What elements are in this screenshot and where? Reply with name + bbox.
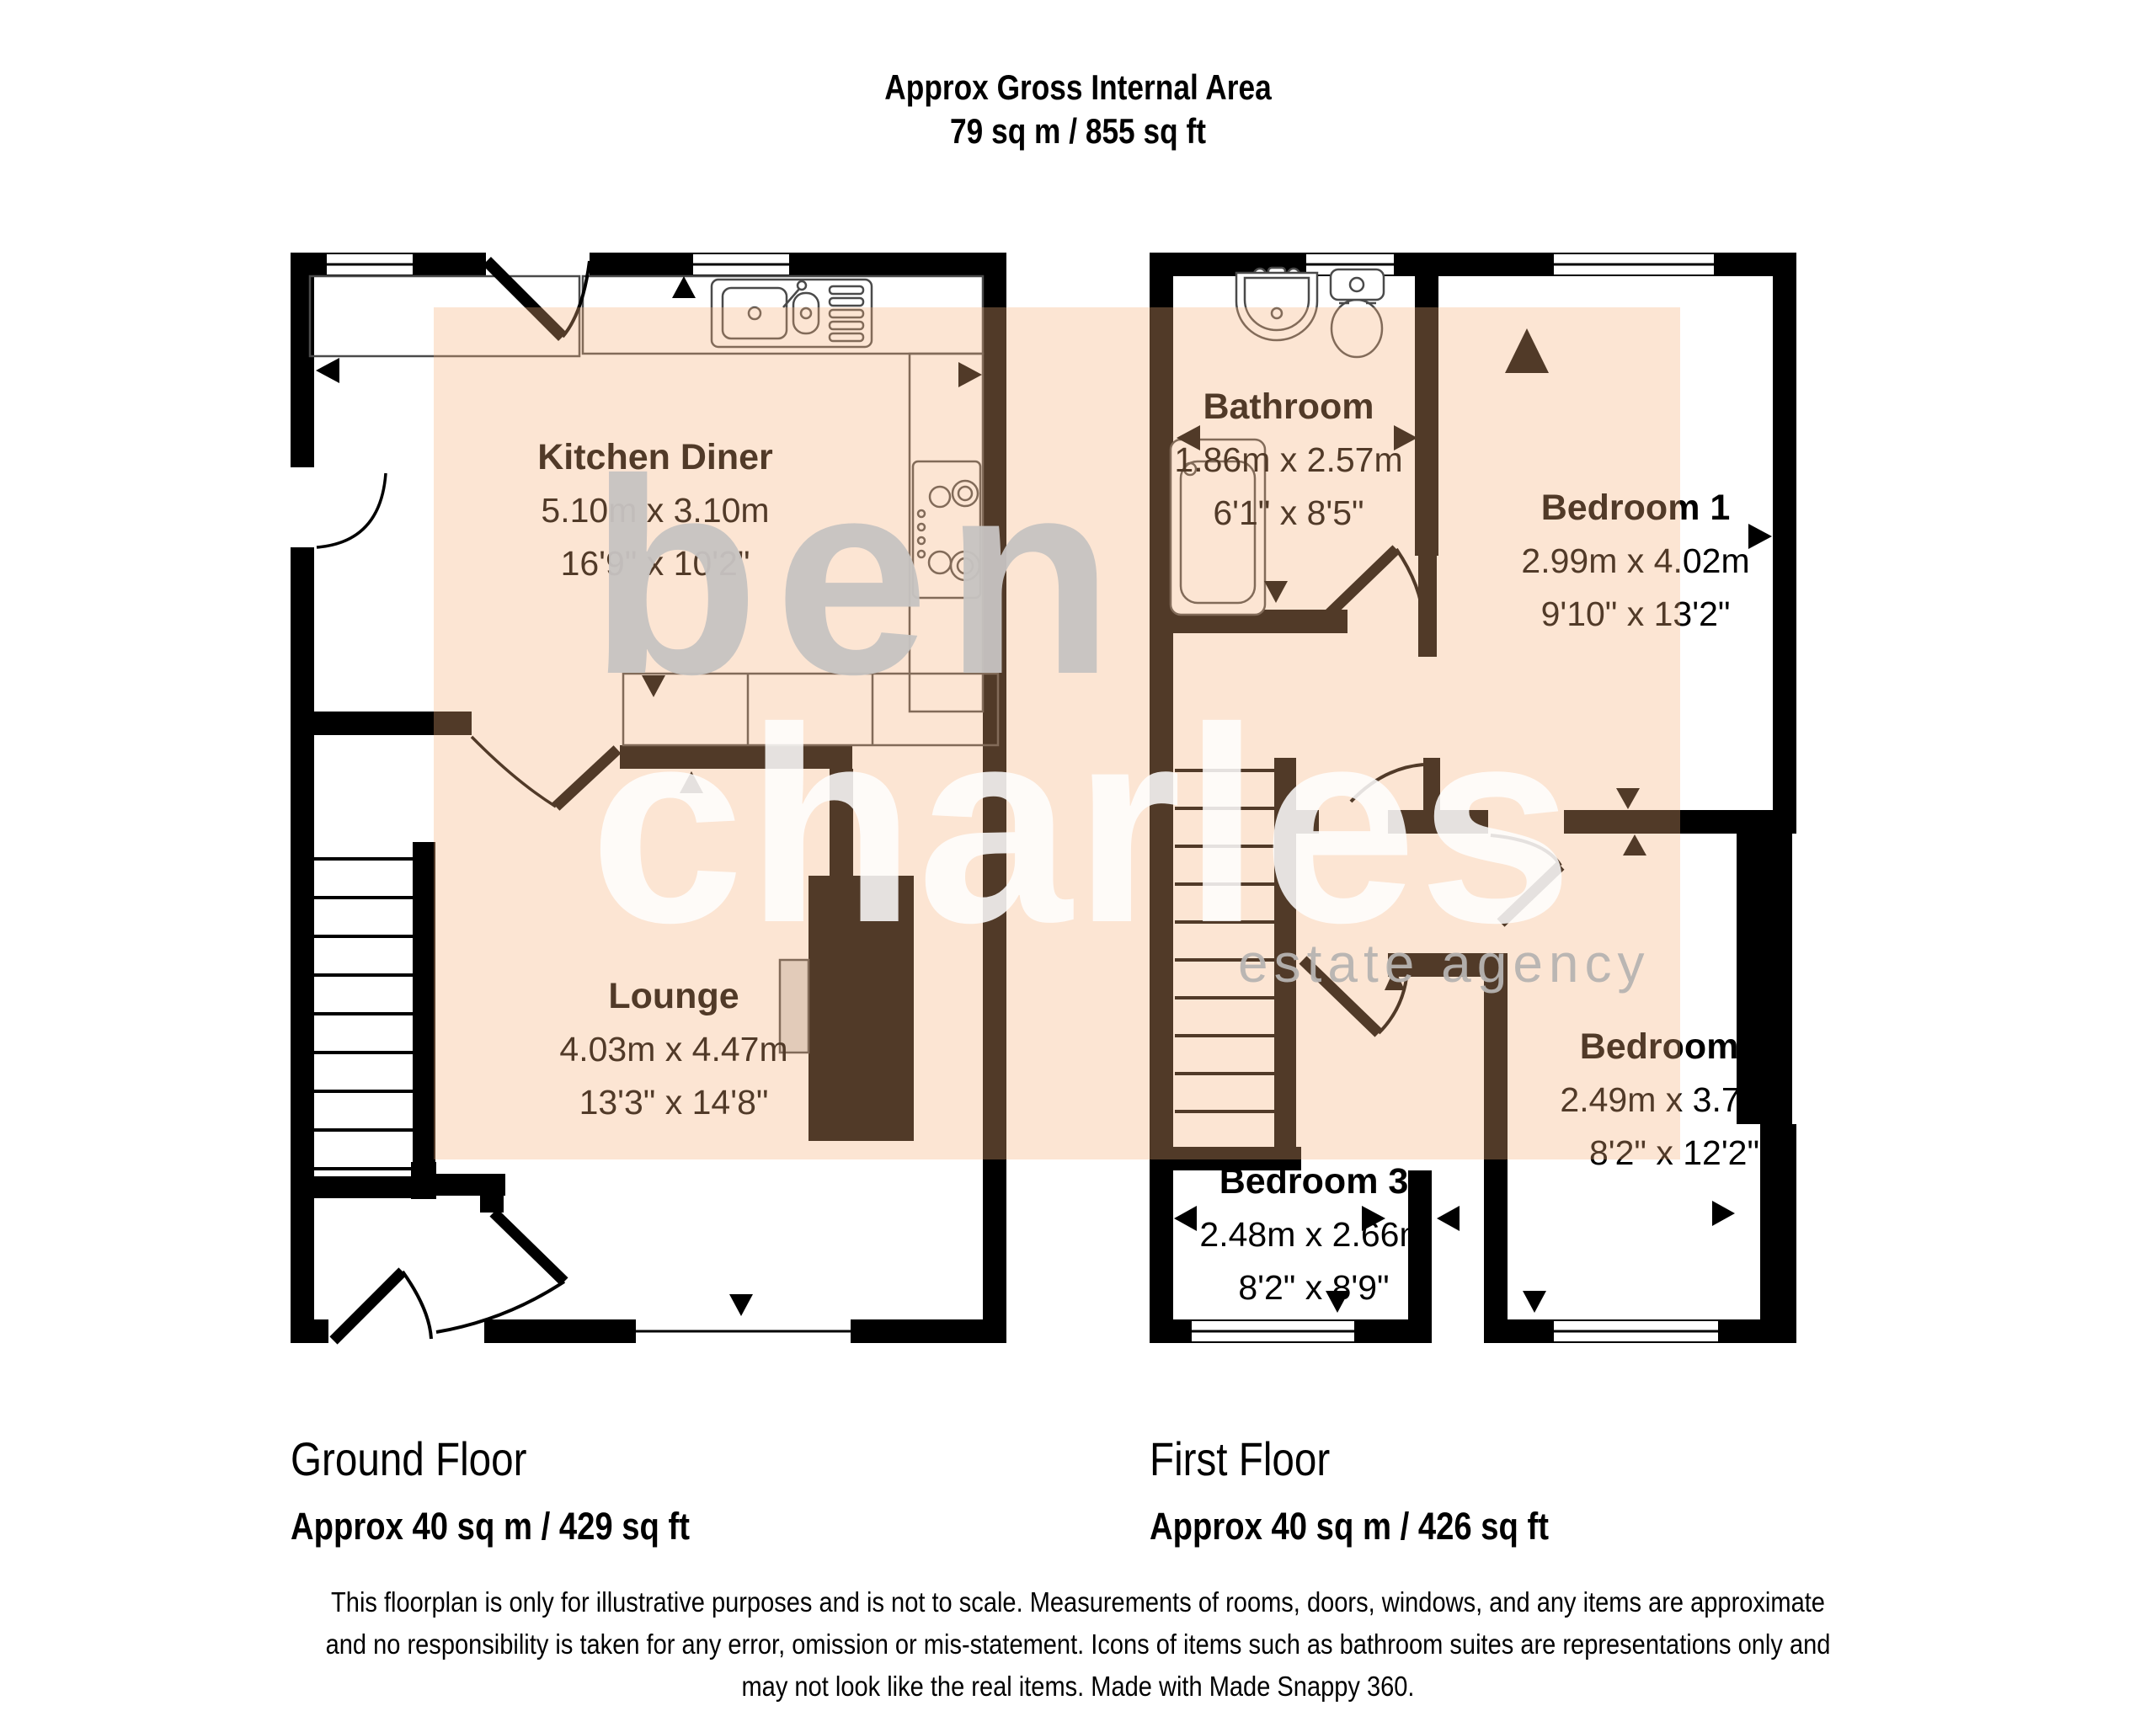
ground-floor-walls bbox=[291, 253, 1006, 1343]
room-dims-imperial: 13'3" x 14'8" bbox=[559, 1076, 787, 1129]
room-label-lounge: Lounge 4.03m x 4.47m 13'3" x 14'8" bbox=[559, 970, 787, 1129]
room-name: Bedroom 1 bbox=[1521, 482, 1749, 535]
floor-name: Ground Floor bbox=[291, 1431, 690, 1486]
disclaimer-line-1: This floorplan is only for illustrative … bbox=[130, 1581, 2027, 1623]
toilet-icon bbox=[1331, 269, 1384, 357]
first-floor-caption: First Floor Approx 40 sq m / 426 sq ft bbox=[1150, 1431, 1620, 1548]
room-dims-metric: 4.03m x 4.47m bbox=[559, 1023, 787, 1076]
room-name: Bedroom 3 bbox=[1199, 1155, 1428, 1208]
ground-floor-stairs bbox=[314, 859, 413, 1169]
title-line-1: Approx Gross Internal Area bbox=[173, 66, 1983, 109]
first-floor-stairs bbox=[1175, 770, 1274, 1111]
ground-floor-caption: Ground Floor Approx 40 sq m / 429 sq ft bbox=[291, 1431, 760, 1548]
room-name: Kitchen Diner bbox=[537, 431, 773, 484]
room-dims-imperial: 8'2" x 12'2" bbox=[1560, 1127, 1788, 1180]
room-name: Bedroom 2 bbox=[1560, 1021, 1788, 1074]
disclaimer-text: This floorplan is only for illustrative … bbox=[130, 1581, 2027, 1708]
room-label-bedroom-1: Bedroom 1 2.99m x 4.02m 9'10" x 13'2" bbox=[1521, 482, 1749, 641]
floor-area: Approx 40 sq m / 429 sq ft bbox=[291, 1505, 690, 1548]
fireplace-block bbox=[808, 876, 914, 1141]
room-dims-imperial: 8'2" x 8'9" bbox=[1199, 1261, 1428, 1314]
room-dims-imperial: 9'10" x 13'2" bbox=[1521, 588, 1749, 641]
room-dims-metric: 2.49m x 3.70m bbox=[1560, 1074, 1788, 1127]
floor-name: First Floor bbox=[1150, 1431, 1549, 1486]
room-dims-metric: 1.86m x 2.57m bbox=[1174, 434, 1402, 487]
room-dims-metric: 2.99m x 4.02m bbox=[1521, 535, 1749, 588]
title-line-2: 79 sq m / 855 sq ft bbox=[173, 109, 1983, 153]
ground-floor-plan bbox=[291, 253, 1006, 1343]
room-label-bedroom-2: Bedroom 2 2.49m x 3.70m 8'2" x 12'2" bbox=[1560, 1021, 1788, 1180]
room-dims-imperial: 16'9" x 10'2" bbox=[537, 537, 773, 590]
basin-icon bbox=[1236, 268, 1317, 340]
room-label-bathroom: Bathroom 1.86m x 2.57m 6'1" x 8'5" bbox=[1174, 381, 1402, 540]
page-title: Approx Gross Internal Area 79 sq m / 855… bbox=[173, 66, 1983, 153]
room-label-kitchen-diner: Kitchen Diner 5.10m x 3.10m 16'9" x 10'2… bbox=[537, 431, 773, 590]
floor-area: Approx 40 sq m / 426 sq ft bbox=[1150, 1505, 1549, 1548]
room-dims-imperial: 6'1" x 8'5" bbox=[1174, 487, 1402, 540]
room-name: Lounge bbox=[559, 970, 787, 1023]
floorplan-page: Kitchen Diner 5.10m x 3.10m 16'9" x 10'2… bbox=[0, 0, 2156, 1711]
sink-icon bbox=[712, 280, 872, 347]
room-name: Bathroom bbox=[1174, 381, 1402, 434]
room-dims-metric: 2.48m x 2.66m bbox=[1199, 1208, 1428, 1261]
room-label-bedroom-3: Bedroom 3 2.48m x 2.66m 8'2" x 8'9" bbox=[1199, 1155, 1428, 1314]
room-dims-metric: 5.10m x 3.10m bbox=[537, 484, 773, 537]
disclaimer-line-2: and no responsibility is taken for any e… bbox=[130, 1623, 2027, 1666]
disclaimer-line-3: may not look like the real items. Made w… bbox=[130, 1666, 2027, 1708]
hob-icon bbox=[913, 461, 980, 598]
